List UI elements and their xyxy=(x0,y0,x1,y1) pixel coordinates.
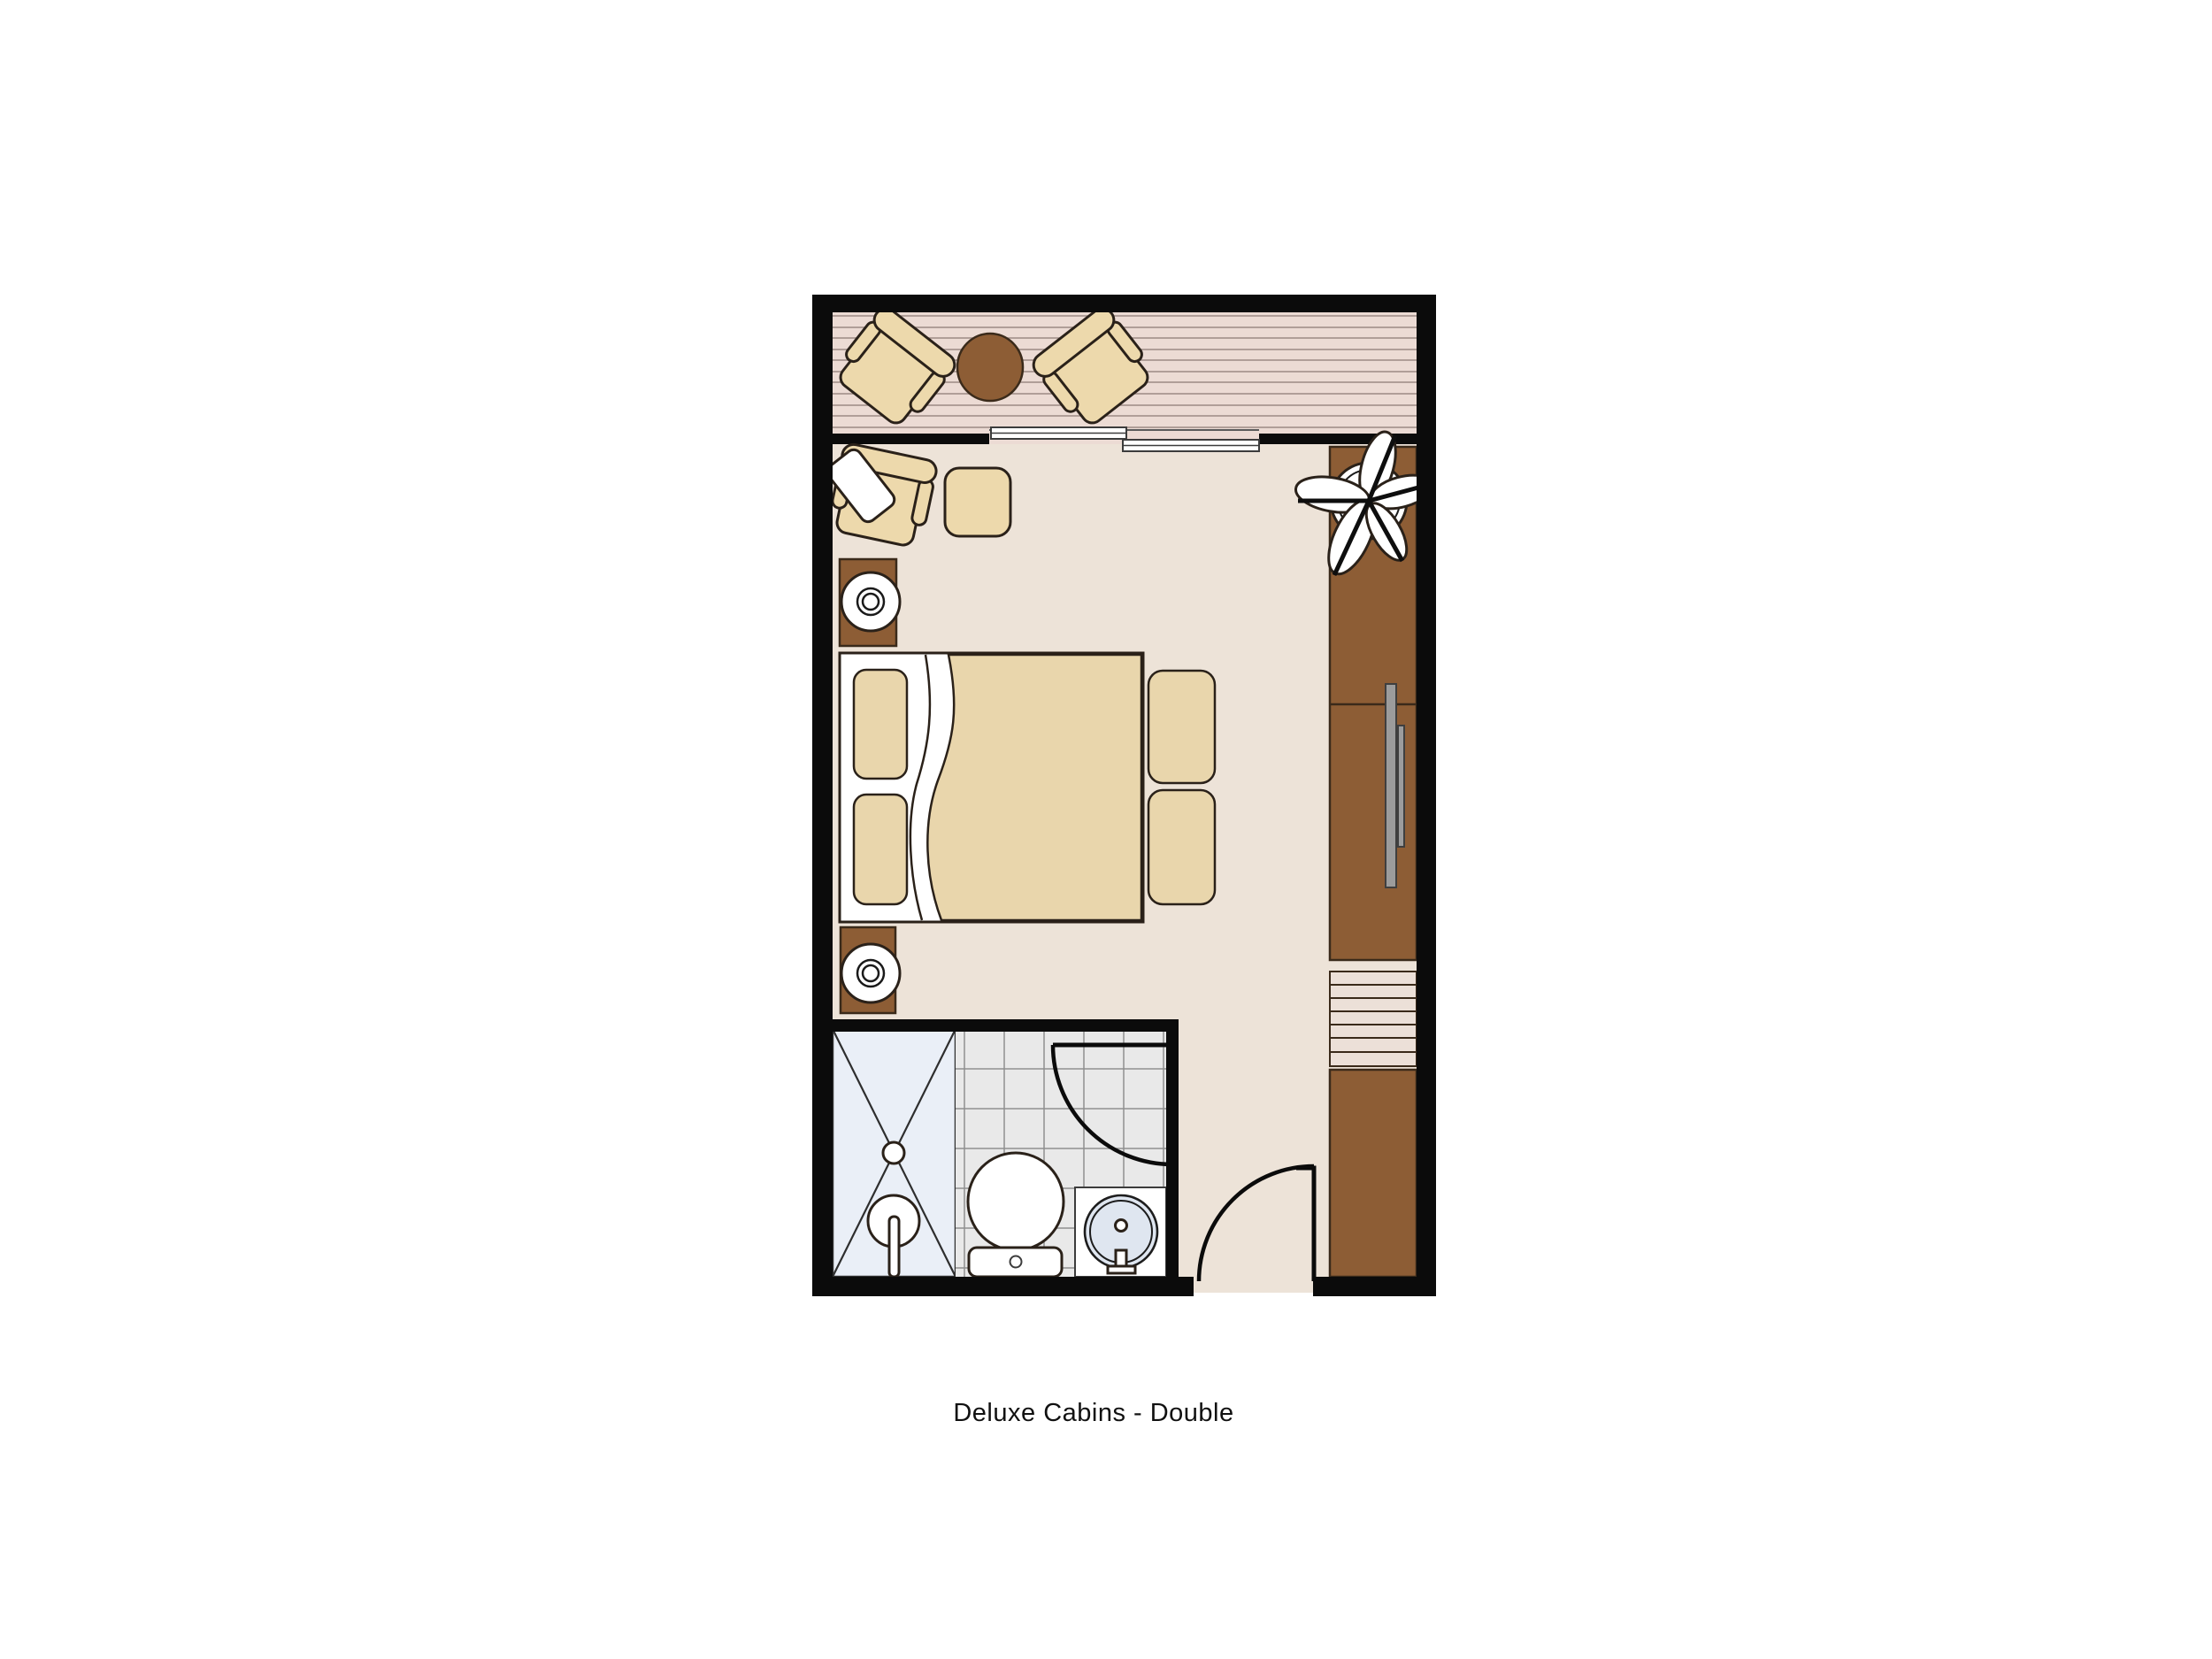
shower-handle xyxy=(889,1217,899,1277)
bed-pillow-top xyxy=(854,670,907,779)
toilet-bowl xyxy=(968,1153,1064,1250)
plan-caption: Deluxe Cabins - Double xyxy=(872,1399,1315,1428)
wall-bottom-right xyxy=(1313,1277,1436,1296)
bed-pillow-bottom xyxy=(854,795,907,904)
ottoman xyxy=(945,468,1010,536)
shower xyxy=(833,1029,956,1277)
toilet-flush-button xyxy=(1010,1256,1022,1268)
balcony-table xyxy=(957,334,1023,401)
lamp-top xyxy=(841,572,900,631)
sink-tap-base xyxy=(1108,1266,1135,1273)
wall-top xyxy=(812,295,1436,312)
wardrobe-handle-main xyxy=(1386,684,1396,887)
wall-bottom-left xyxy=(812,1277,1194,1296)
lamp-bottom xyxy=(841,944,900,1002)
double-bed xyxy=(840,653,1143,922)
shower-head xyxy=(883,1142,904,1164)
bathroom xyxy=(833,1029,1172,1277)
nightstand-bottom xyxy=(841,927,900,1013)
toilet xyxy=(968,1153,1064,1277)
seat-cushion-top xyxy=(1148,671,1215,783)
lower-cabinet xyxy=(1330,1070,1417,1277)
bed-spread xyxy=(927,655,1141,920)
seat-cushion-bottom xyxy=(1148,790,1215,904)
nightstand-top xyxy=(840,559,900,646)
sink-drain xyxy=(1116,1220,1127,1232)
entry-threshold-floor xyxy=(1194,1277,1313,1293)
luggage-rack xyxy=(1330,972,1417,1066)
sink-vanity xyxy=(1075,1187,1166,1277)
wall-bathroom-top xyxy=(833,1019,1177,1032)
wall-left xyxy=(812,295,833,1296)
wall-right xyxy=(1417,295,1436,1296)
wall-bathroom-right xyxy=(1166,1019,1179,1277)
wardrobe-handle-second xyxy=(1398,726,1404,847)
